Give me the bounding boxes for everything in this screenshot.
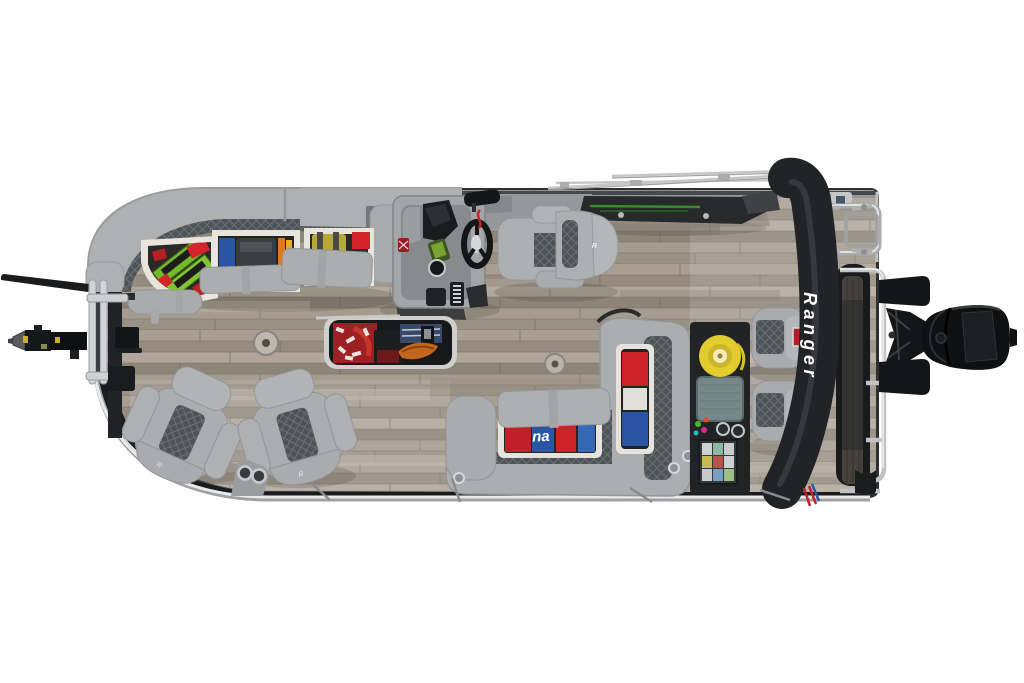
svg-text:Ranger: Ranger bbox=[800, 292, 820, 381]
svg-text:na: na bbox=[532, 428, 550, 446]
svg-text:R: R bbox=[592, 243, 597, 250]
